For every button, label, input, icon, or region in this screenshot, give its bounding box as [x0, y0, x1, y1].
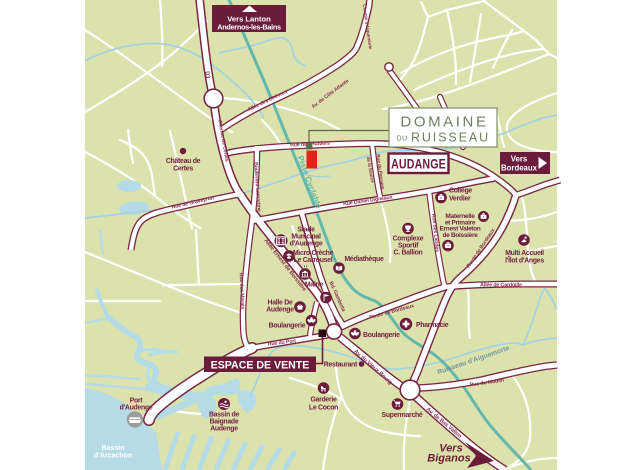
svg-text:DU: DU: [397, 136, 408, 143]
svg-text:Vers: Vers: [511, 155, 528, 164]
svg-text:Pharmacie: Pharmacie: [416, 322, 449, 329]
svg-text:DOMAINE: DOMAINE: [400, 114, 488, 131]
svg-text:Bordeaux: Bordeaux: [501, 164, 538, 173]
svg-text:ESPACE DE VENTE: ESPACE DE VENTE: [211, 359, 310, 371]
svg-text:Andernos-les-Bains: Andernos-les-Bains: [217, 23, 281, 32]
svg-text:d'Arcachon: d'Arcachon: [94, 453, 132, 460]
svg-text:Restaurant: Restaurant: [324, 362, 358, 369]
svg-text:Bassin: Bassin: [102, 445, 125, 452]
svg-text:Biganos: Biganos: [427, 453, 470, 465]
svg-text:Port: Port: [130, 398, 144, 405]
svg-text:Garderie: Garderie: [310, 397, 337, 404]
svg-text:de Boissière: de Boissière: [442, 232, 478, 239]
svg-text:Sportif: Sportif: [398, 243, 419, 250]
svg-text:Halle De: Halle De: [268, 300, 293, 307]
svg-text:Allée de Cardoille: Allée de Cardoille: [480, 283, 522, 289]
svg-text:RUISSEAU: RUISSEAU: [411, 131, 490, 145]
svg-text:Médiathèque: Médiathèque: [344, 256, 383, 263]
svg-text:Supermarché: Supermarché: [382, 412, 423, 419]
svg-text:d'Audenge: d'Audenge: [120, 405, 153, 412]
svg-text:Multi Accueil: Multi Accueil: [505, 250, 544, 257]
svg-text:Baignade: Baignade: [210, 419, 239, 426]
svg-text:Boulangerie: Boulangerie: [269, 323, 306, 330]
svg-text:d'Audenge: d'Audenge: [290, 241, 323, 248]
svg-text:Le Carrousel: Le Carrousel: [294, 257, 333, 264]
svg-text:Château de: Château de: [166, 158, 201, 165]
svg-text:Verdier: Verdier: [449, 196, 471, 203]
svg-text:Audenge: Audenge: [266, 307, 294, 314]
svg-text:Mairie: Mairie: [305, 282, 324, 289]
svg-text:C. Ballion: C. Ballion: [394, 250, 423, 257]
svg-text:Complexe: Complexe: [393, 236, 424, 243]
svg-text:Collège: Collège: [449, 188, 472, 195]
svg-text:l'Îlot d'Anges: l'Îlot d'Anges: [505, 256, 544, 265]
svg-text:D3: D3: [203, 71, 210, 79]
svg-text:Le Cocon: Le Cocon: [309, 405, 338, 412]
svg-text:Micro Crèche: Micro Crèche: [293, 250, 334, 257]
svg-text:Bassin de: Bassin de: [209, 412, 239, 419]
svg-text:Audenge: Audenge: [210, 426, 238, 433]
svg-text:Stade: Stade: [297, 227, 315, 234]
svg-text:AUDANGE: AUDANGE: [391, 156, 446, 172]
svg-text:Boulangerie: Boulangerie: [363, 332, 400, 339]
svg-text:Municipal: Municipal: [291, 234, 321, 241]
svg-text:Certes: Certes: [173, 166, 193, 173]
